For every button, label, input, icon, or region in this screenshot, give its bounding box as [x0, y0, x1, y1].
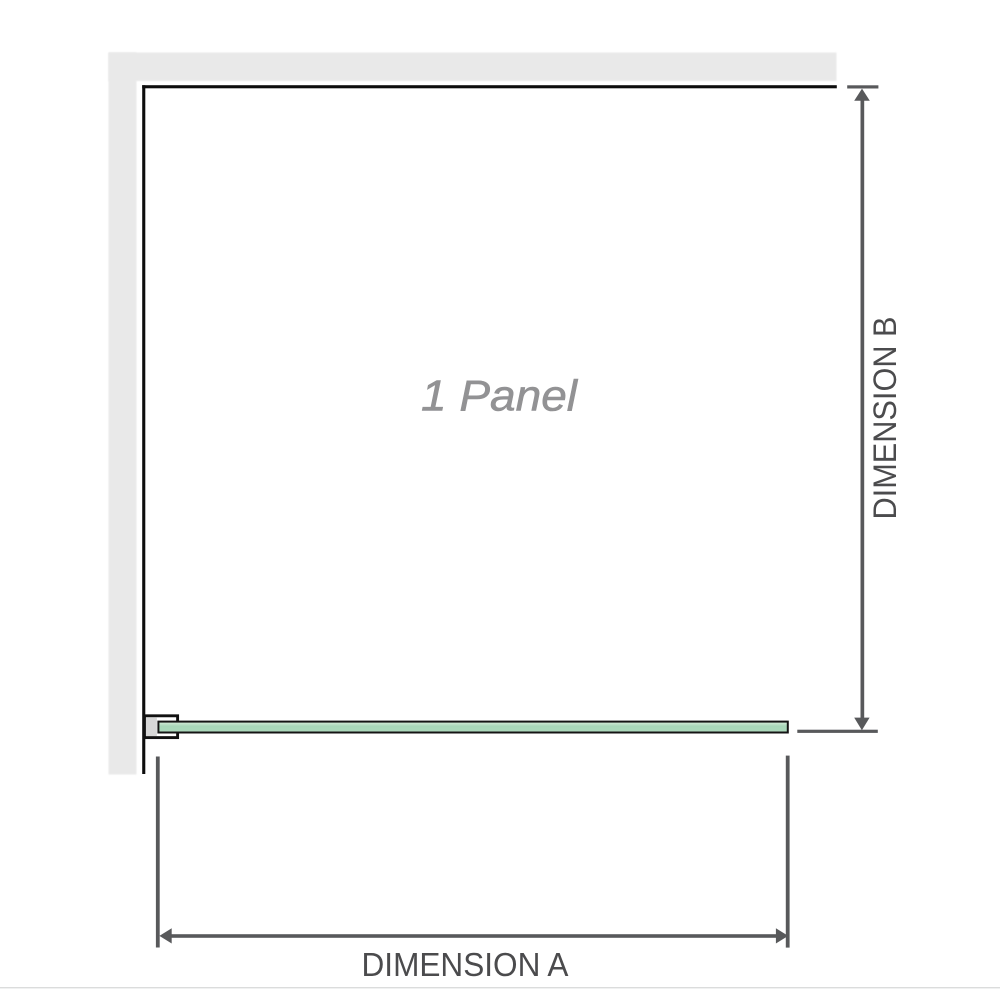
svg-text:1 Panel: 1 Panel [421, 372, 578, 421]
svg-text:DIMENSION B: DIMENSION B [867, 317, 903, 520]
svg-text:DIMENSION A: DIMENSION A [362, 946, 569, 983]
